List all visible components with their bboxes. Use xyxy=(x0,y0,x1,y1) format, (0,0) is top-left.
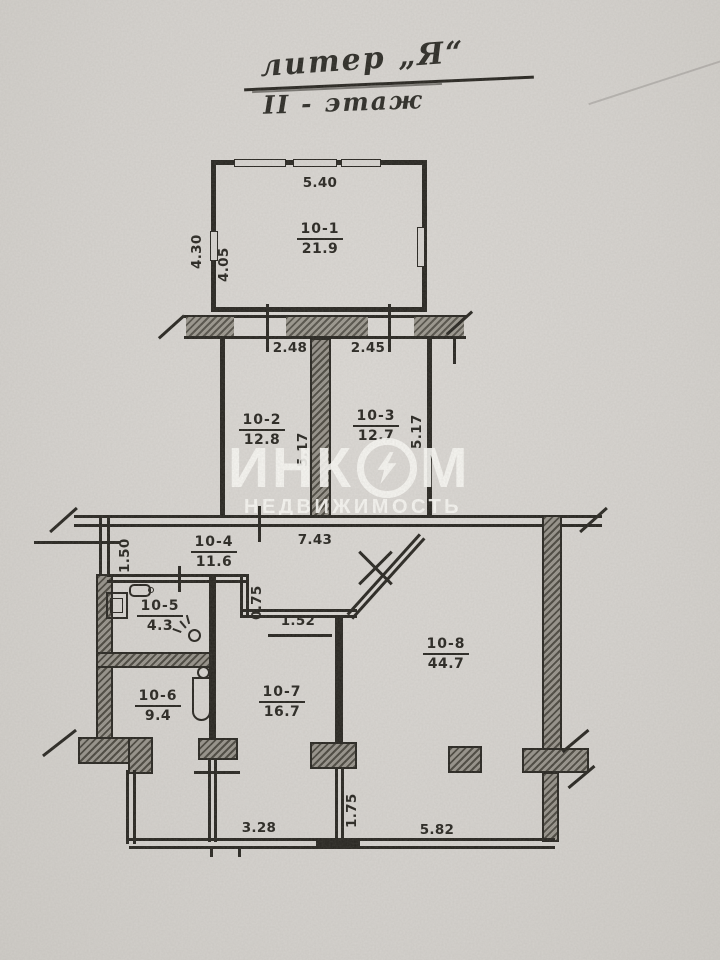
shower-spray-3 xyxy=(186,615,190,624)
watermark-text-right: М xyxy=(420,440,470,497)
room-number: 10-1 xyxy=(297,221,342,240)
dim-room1-outer: 4.30 xyxy=(191,228,205,276)
room-label-10-6: 10-6 9.4 xyxy=(134,688,182,724)
pillar-b xyxy=(310,742,357,769)
left-wall-upper xyxy=(99,515,110,577)
paper-crease xyxy=(588,57,720,105)
dim-bottom-right-span: 5.82 xyxy=(412,824,462,838)
pillar-a xyxy=(198,738,238,760)
room-number: 10-5 xyxy=(137,598,182,617)
dim-room1-inner: 4.05 xyxy=(218,240,232,290)
dim-step-width: 1.52 xyxy=(272,615,324,629)
wall-bottom-left xyxy=(126,770,136,844)
window-top-3 xyxy=(341,159,381,167)
dim-opening-left: 2.48 xyxy=(268,342,312,356)
room-label-10-1: 10-1 21.9 xyxy=(292,221,348,257)
window-top-2 xyxy=(293,159,337,167)
room-area: 21.9 xyxy=(302,240,339,257)
dim-tick-150 xyxy=(34,541,120,544)
bottom-stub-1 xyxy=(210,849,213,857)
lightning-icon xyxy=(375,452,399,484)
dim-room1-width: 5.40 xyxy=(296,177,344,191)
room-label-10-4: 10-4 11.6 xyxy=(190,534,238,570)
room-label-10-5: 10-5 4.3 xyxy=(136,598,184,634)
lower-block-top-wall xyxy=(74,515,602,527)
room-number: 10-8 xyxy=(423,636,468,655)
toilet-icon xyxy=(192,677,211,721)
scanned-floor-plan: литер „Я“ II - этаж 5.40 10-1 21.9 4.30 … xyxy=(0,0,720,960)
window-top-1 xyxy=(234,159,286,167)
dim-tick-743 xyxy=(258,506,261,542)
plan-title: литер „Я“ xyxy=(259,35,466,84)
room-area: 11.6 xyxy=(196,553,233,570)
tick-below-pillar-a xyxy=(194,771,240,774)
lightning-ring-icon xyxy=(357,438,417,498)
room-area: 4.3 xyxy=(147,617,173,634)
wall-stub-right xyxy=(453,338,456,364)
pillar-bottom-left-ext xyxy=(128,737,153,774)
wall-10-5-bottom xyxy=(96,652,216,668)
room-number: 10-6 xyxy=(135,688,180,707)
room-area: 9.4 xyxy=(145,707,171,724)
room-label-10-7: 10-7 16.7 xyxy=(256,684,308,720)
shower-icon xyxy=(188,629,201,642)
wall-10-7-10-8 xyxy=(335,616,343,746)
room-number: 10-4 xyxy=(191,534,236,553)
dim-corridor-width: 7.43 xyxy=(290,534,340,548)
valve-icon xyxy=(148,587,154,593)
room-number: 10-7 xyxy=(259,684,304,703)
pillar-c xyxy=(448,746,482,773)
wall-10-6-10-7 xyxy=(209,574,216,744)
corridor-door-tick xyxy=(178,566,181,592)
dim-bottom-inner: 1.75 xyxy=(346,786,360,836)
room-label-10-8: 10-8 44.7 xyxy=(420,636,472,672)
dim-bottom-left-span: 3.28 xyxy=(234,822,284,836)
dim-corridor-left: 1.50 xyxy=(119,534,133,578)
dim-line-152 xyxy=(268,634,332,637)
band-hatch-2 xyxy=(286,317,368,336)
room-area: 16.7 xyxy=(264,703,301,720)
bottom-stub-2 xyxy=(238,849,241,857)
plan-subtitle: II - этаж xyxy=(263,85,425,120)
dim-opening-right: 2.45 xyxy=(346,342,390,356)
right-wall-t-bar xyxy=(522,748,589,773)
right-wall-hatched xyxy=(542,515,562,753)
wall-below-pillar-b xyxy=(335,767,344,842)
bottom-wall-threshold xyxy=(316,838,360,849)
dim-step-depth: 0.75 xyxy=(251,585,265,621)
watermark-logo: ИНК М xyxy=(228,438,470,498)
room-number: 10-2 xyxy=(239,412,284,431)
right-wall-lower xyxy=(542,772,559,842)
pillar-tick-left xyxy=(42,729,77,757)
wall-10-2-left xyxy=(220,338,225,518)
band-end-tick-left xyxy=(158,315,185,340)
sink-basin-icon xyxy=(110,598,123,613)
room-number: 10-3 xyxy=(353,408,398,427)
window-right xyxy=(417,227,425,267)
watermark-text-left: ИНК xyxy=(228,440,354,497)
room-area: 44.7 xyxy=(428,655,465,672)
band-hatch-1 xyxy=(186,317,234,336)
